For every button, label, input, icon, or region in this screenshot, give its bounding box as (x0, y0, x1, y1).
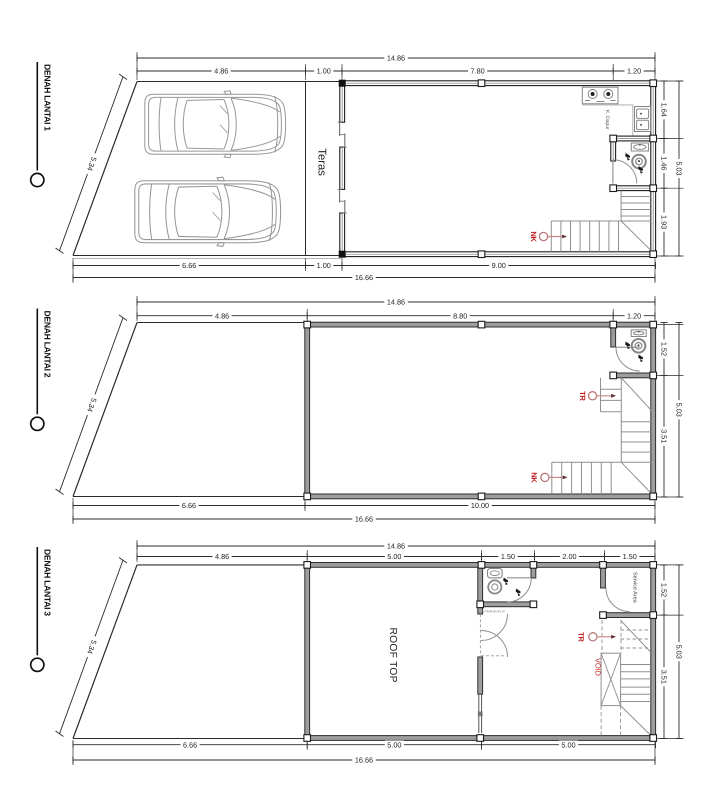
svg-text:16.66: 16.66 (355, 756, 373, 765)
svg-text:TR: TR (578, 391, 587, 401)
svg-text:1.64: 1.64 (659, 103, 668, 117)
svg-text:1.52: 1.52 (659, 583, 668, 597)
svg-text:K. Mandi 2x1.5: K. Mandi 2x1.5 (483, 610, 504, 614)
svg-text:TR: TR (576, 632, 585, 642)
svg-text:5.00: 5.00 (387, 740, 401, 749)
svg-text:4.86: 4.86 (214, 67, 228, 76)
svg-text:1.00: 1.00 (317, 67, 331, 76)
svg-text:ROOF TOP: ROOF TOP (387, 628, 398, 683)
svg-text:8.80: 8.80 (453, 311, 467, 320)
svg-text:DENAH LANTAI 1: DENAH LANTAI 1 (43, 64, 53, 131)
svg-text:16.66: 16.66 (355, 273, 373, 282)
svg-text:NK: NK (529, 472, 538, 483)
svg-text:5.00: 5.00 (387, 552, 401, 561)
svg-text:16.66: 16.66 (355, 515, 373, 524)
svg-text:K. Dapur: K. Dapur (604, 110, 610, 130)
svg-text:1.46: 1.46 (659, 156, 668, 170)
svg-text:5.00: 5.00 (561, 740, 575, 749)
svg-text:1.52: 1.52 (659, 342, 668, 356)
svg-text:14.86: 14.86 (387, 54, 405, 63)
svg-text:5.03: 5.03 (674, 403, 683, 417)
svg-text:14.86: 14.86 (387, 298, 405, 307)
svg-text:4.86: 4.86 (215, 552, 229, 561)
svg-text:9.00: 9.00 (492, 261, 506, 270)
svg-text:6.66: 6.66 (182, 261, 196, 270)
svg-text:2.00: 2.00 (562, 552, 576, 561)
svg-text:1.93: 1.93 (659, 215, 668, 229)
svg-text:DENAH LANTAI 2: DENAH LANTAI 2 (43, 311, 53, 378)
svg-text:6.66: 6.66 (183, 740, 197, 749)
svg-text:1.00: 1.00 (317, 261, 331, 270)
svg-text:1.20: 1.20 (627, 311, 641, 320)
svg-text:Teras: Teras (316, 148, 328, 176)
svg-text:Service Area: Service Area (632, 572, 638, 603)
svg-text:5.03: 5.03 (674, 161, 683, 175)
svg-text:5.03: 5.03 (674, 645, 683, 659)
svg-text:4.86: 4.86 (215, 311, 229, 320)
svg-text:VOID: VOID (593, 658, 602, 676)
svg-text:14.86: 14.86 (387, 542, 405, 551)
svg-text:7.80: 7.80 (470, 67, 484, 76)
svg-text:3.51: 3.51 (659, 429, 668, 443)
svg-text:NK: NK (529, 231, 538, 242)
svg-text:1.20: 1.20 (627, 67, 641, 76)
svg-text:3.51: 3.51 (659, 670, 668, 684)
svg-text:1.50: 1.50 (623, 552, 637, 561)
svg-text:6.66: 6.66 (182, 501, 196, 510)
svg-text:10.00: 10.00 (471, 501, 489, 510)
svg-text:1.50: 1.50 (501, 552, 515, 561)
svg-text:DENAH LANTAI 3: DENAH LANTAI 3 (43, 549, 53, 616)
